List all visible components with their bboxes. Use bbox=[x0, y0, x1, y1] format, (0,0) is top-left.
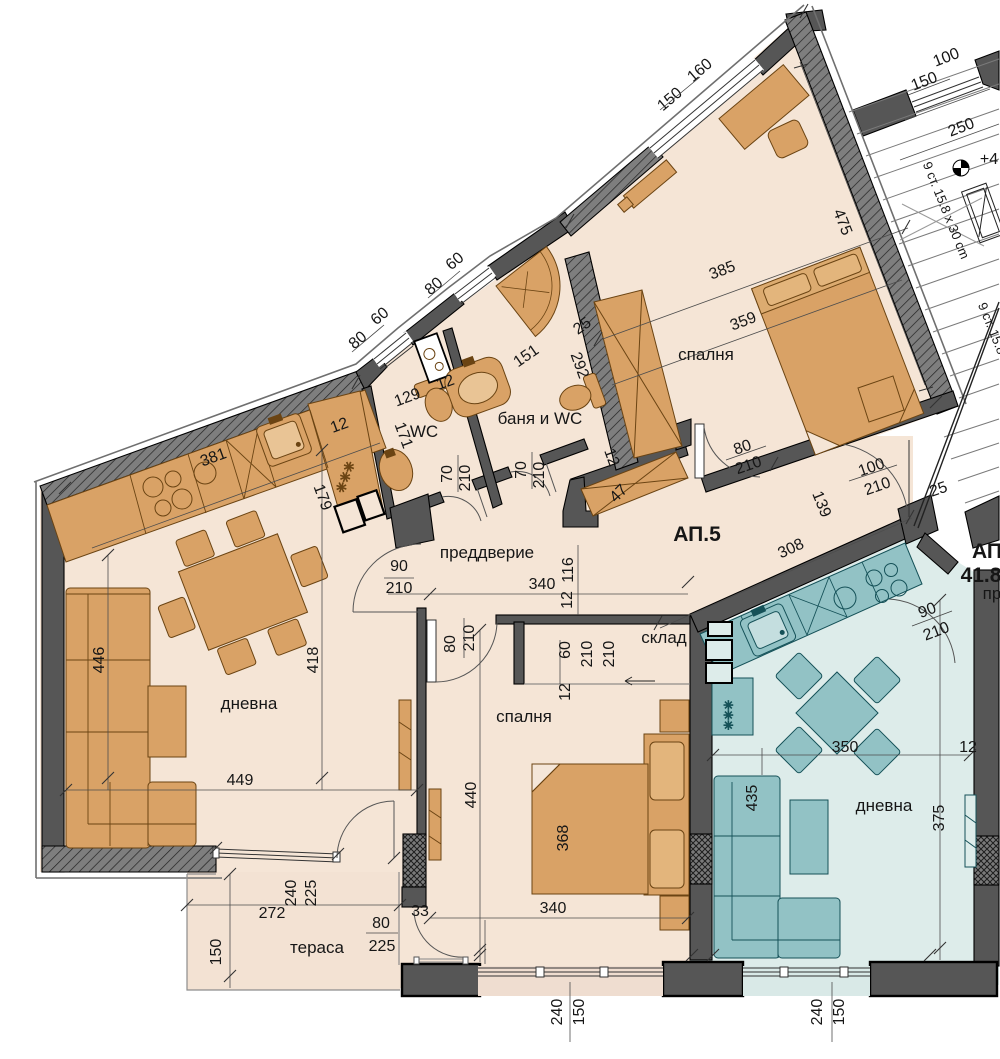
svg-text:350: 350 bbox=[832, 739, 859, 756]
svg-text:дневна: дневна bbox=[856, 796, 913, 815]
svg-text:80: 80 bbox=[372, 915, 390, 932]
svg-text:склад: склад bbox=[641, 628, 687, 647]
svg-text:АП.5: АП.5 bbox=[673, 523, 721, 546]
svg-text:150: 150 bbox=[571, 999, 588, 1026]
svg-text:210: 210 bbox=[461, 625, 478, 652]
svg-text:70: 70 bbox=[513, 461, 530, 479]
svg-text:418: 418 bbox=[305, 647, 322, 674]
svg-text:✳✳✳: ✳✳✳ bbox=[721, 700, 735, 730]
svg-text:375: 375 bbox=[931, 805, 948, 832]
svg-text:70: 70 bbox=[439, 465, 456, 483]
svg-text:210: 210 bbox=[579, 641, 596, 668]
svg-text:240: 240 bbox=[549, 999, 566, 1026]
svg-text:80: 80 bbox=[442, 635, 459, 653]
svg-text:150: 150 bbox=[208, 939, 225, 966]
svg-text:WC: WC bbox=[410, 422, 438, 441]
svg-text:240: 240 bbox=[809, 999, 826, 1026]
svg-text:тераса: тераса bbox=[290, 938, 344, 957]
svg-text:210: 210 bbox=[457, 465, 474, 492]
svg-text:435: 435 bbox=[744, 785, 761, 812]
svg-text:210: 210 bbox=[386, 580, 413, 597]
svg-text:баня и WC: баня и WC bbox=[498, 409, 583, 428]
svg-text:340: 340 bbox=[540, 900, 567, 917]
svg-text:210: 210 bbox=[601, 641, 618, 668]
svg-text:225: 225 bbox=[303, 880, 320, 907]
svg-text:дневна: дневна bbox=[221, 694, 278, 713]
svg-text:33: 33 bbox=[411, 903, 429, 920]
svg-text:272: 272 bbox=[259, 905, 286, 922]
svg-text:12: 12 bbox=[559, 591, 576, 609]
svg-text:+4: +4 bbox=[980, 151, 998, 168]
svg-text:АП: АП bbox=[972, 540, 1000, 563]
svg-text:преддверие: преддверие bbox=[440, 543, 534, 562]
svg-text:240: 240 bbox=[283, 880, 300, 907]
svg-text:368: 368 bbox=[555, 825, 572, 852]
svg-text:12: 12 bbox=[959, 739, 977, 756]
svg-text:116: 116 bbox=[560, 557, 577, 583]
svg-text:90: 90 bbox=[390, 558, 408, 575]
svg-text:446: 446 bbox=[91, 647, 108, 674]
svg-text:пр: пр bbox=[983, 584, 1000, 603]
svg-text:спалня: спалня bbox=[496, 707, 552, 726]
svg-text:449: 449 bbox=[227, 772, 254, 789]
svg-text:150: 150 bbox=[831, 999, 848, 1026]
svg-text:60: 60 bbox=[557, 641, 574, 659]
svg-text:спалня: спалня bbox=[678, 345, 734, 364]
svg-text:12: 12 bbox=[557, 683, 574, 701]
svg-text:440: 440 bbox=[463, 782, 480, 809]
svg-text:210: 210 bbox=[531, 462, 548, 489]
svg-text:340: 340 bbox=[529, 576, 556, 593]
svg-text:225: 225 bbox=[369, 938, 396, 955]
